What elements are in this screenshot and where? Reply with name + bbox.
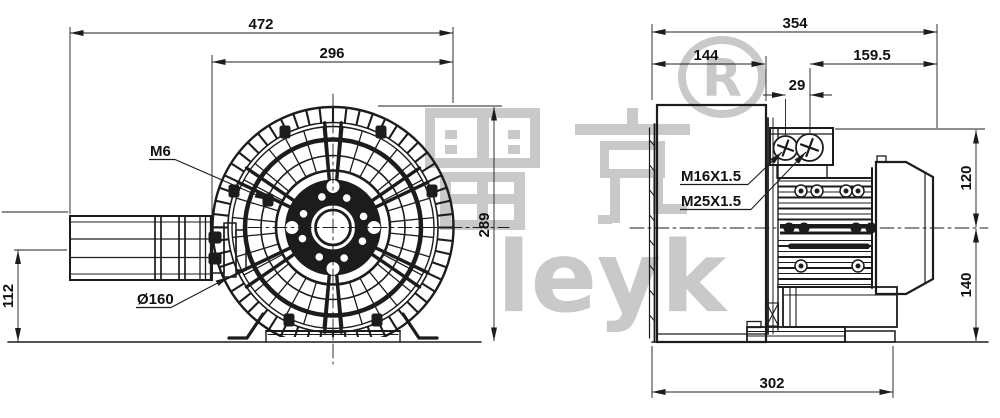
technical-drawing-canvas: 雷克 ® R leyk <box>0 0 1000 418</box>
terminal-box <box>770 128 833 178</box>
dim-box-top-to-axis-label: 120 <box>958 165 975 190</box>
dim-overall-width-label: 472 <box>248 16 273 33</box>
dimension-302: 302 <box>652 346 893 398</box>
fan-cover <box>876 156 933 294</box>
dim-overall-height-label: 289 <box>476 212 493 237</box>
cable-gland-small-label: M16X1.5 <box>681 168 741 185</box>
dimension-159-5: 159.5 <box>810 47 937 64</box>
guard-screw-label: M6 <box>150 143 171 160</box>
dim-overall-length-label: 354 <box>782 15 808 32</box>
watermark-latin-text: leyk <box>497 221 729 335</box>
dim-housing-depth-label: 144 <box>693 47 719 64</box>
dim-silencer-axis-height-label: 112 <box>0 284 17 308</box>
dim-guard-width-label: 296 <box>319 45 344 62</box>
label-diameter-160: Ø160 <box>136 277 229 308</box>
front-right-foot <box>403 314 437 338</box>
cable-gland-large-label: M25X1.5 <box>681 193 741 210</box>
port-diameter-label: Ø160 <box>137 291 174 308</box>
dim-gland-spacing-label: 29 <box>789 77 806 94</box>
cable-gland-large <box>796 134 823 161</box>
dim-axis-to-base-label: 140 <box>958 272 975 297</box>
dim-base-length-label: 302 <box>759 375 784 392</box>
watermark-cjk-art <box>425 108 690 230</box>
front-left-foot <box>229 314 263 338</box>
dim-motor-length-label: 159.5 <box>853 47 891 64</box>
watermark: R leyk <box>425 40 762 335</box>
dimension-354: 354 <box>652 15 937 128</box>
silencer-muffler <box>2 212 212 280</box>
front-base <box>8 314 481 342</box>
dimension-140: 140 <box>958 229 976 341</box>
dimension-112: 112 <box>0 250 67 342</box>
